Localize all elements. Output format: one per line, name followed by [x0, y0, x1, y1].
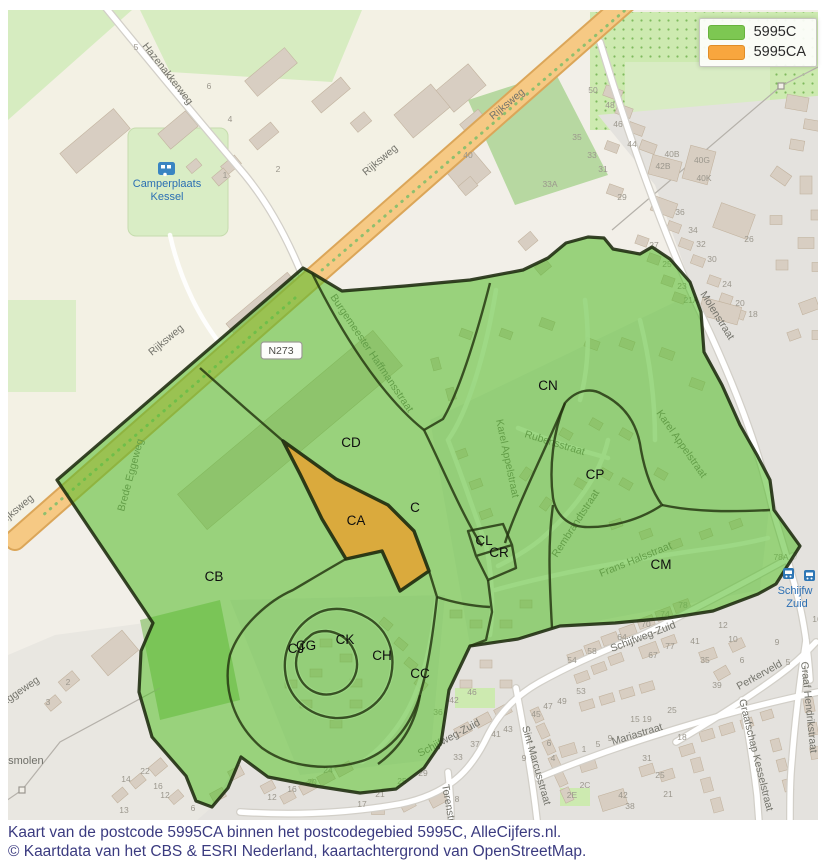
house-number: 53 — [576, 686, 586, 696]
house-number: 17 — [357, 799, 367, 809]
house-number: 67 — [648, 650, 658, 660]
house-number: 14 — [121, 774, 131, 784]
house-number: 4 — [551, 753, 556, 763]
bus-stop-icon — [804, 570, 815, 581]
building — [770, 216, 782, 225]
house-number: 5 — [596, 739, 601, 749]
house-number: 19 — [642, 714, 652, 724]
house-number: 34 — [688, 225, 698, 235]
house-number: 54 — [567, 655, 577, 665]
house-number: 26 — [744, 234, 754, 244]
house-number: 31 — [642, 753, 652, 763]
map-legend: 5995C 5995CA — [699, 18, 817, 67]
house-number: 1 — [223, 170, 228, 180]
area-label-cr: CR — [489, 545, 509, 560]
legend-label-5995c: 5995C — [754, 25, 797, 40]
house-number: 16 — [287, 784, 297, 794]
house-number: 10 — [728, 634, 738, 644]
legend-item-5995ca: 5995CA — [708, 45, 806, 60]
house-number: 40G — [694, 155, 710, 165]
house-number: 9 — [608, 733, 613, 743]
house-number: 13 — [119, 805, 129, 815]
house-number: 18 — [677, 732, 687, 742]
house-number: 41 — [491, 729, 501, 739]
area-label-c: C — [410, 500, 420, 515]
area-label-cb: CB — [205, 569, 224, 584]
house-number: 77 — [665, 641, 675, 651]
poi-label: Camperplaats — [133, 178, 202, 190]
house-number: 49 — [557, 696, 567, 706]
house-number: 3 — [46, 697, 51, 707]
area-label-cc: CC — [410, 666, 430, 681]
legend-swatch-5995c — [708, 25, 745, 40]
house-number: 50 — [588, 85, 598, 95]
house-number: 12 — [160, 790, 170, 800]
house-number: 5 — [786, 657, 791, 667]
house-number: 4 — [228, 114, 233, 124]
house-number: 64 — [617, 632, 627, 642]
house-number: 33 — [453, 752, 463, 762]
legend-label-5995ca: 5995CA — [754, 45, 806, 60]
house-number: 21 — [663, 789, 673, 799]
house-number: 9 — [775, 637, 780, 647]
house-number: 2C — [580, 780, 591, 790]
building — [812, 331, 818, 340]
house-number: 40 — [463, 150, 473, 160]
house-number: 58 — [587, 646, 597, 656]
transit-stop-label: Zuid — [786, 598, 807, 610]
caravan-icon — [158, 162, 175, 176]
house-number: 42 — [449, 695, 459, 705]
area-label-cg: CG — [296, 638, 316, 653]
house-number: 6 — [740, 655, 745, 665]
building — [811, 210, 818, 220]
house-number: 39 — [712, 680, 722, 690]
house-number: 35 — [700, 655, 710, 665]
building — [789, 139, 805, 151]
area-label-ck: CK — [336, 632, 355, 647]
house-number: 31 — [598, 164, 608, 174]
house-number: 38 — [625, 801, 635, 811]
house-number: 2 — [66, 677, 71, 687]
building — [798, 238, 814, 249]
house-number: 42 — [618, 790, 628, 800]
road-ref-badge-n273: N273 — [261, 342, 302, 359]
house-number: 45 — [531, 709, 541, 719]
house-number: 15 — [630, 714, 640, 724]
house-number: 32 — [696, 239, 706, 249]
poi-label: usmolen — [8, 755, 44, 767]
house-number: 41 — [690, 636, 700, 646]
house-number: 2E — [567, 790, 578, 800]
house-number: 42B — [655, 161, 670, 171]
house-number: 25 — [655, 770, 665, 780]
house-number: 37 — [470, 739, 480, 749]
caption-line-1: Kaart van de postcode 5995CA binnen het … — [8, 823, 822, 842]
house-number: 6 — [191, 803, 196, 813]
area-label-ch: CH — [372, 648, 392, 663]
house-number: 8 — [455, 794, 460, 804]
house-number: 1 — [582, 744, 587, 754]
house-number: 40K — [696, 173, 711, 183]
house-number: 43 — [503, 724, 513, 734]
house-number: 6 — [547, 738, 552, 748]
house-number: 9 — [522, 753, 527, 763]
area-label-cd: CD — [341, 435, 361, 450]
house-number: 6 — [207, 81, 212, 91]
house-number: 46 — [613, 119, 623, 129]
house-number: 47 — [543, 701, 553, 711]
building — [812, 263, 818, 272]
svg-text:N273: N273 — [268, 345, 293, 357]
house-number: 25 — [667, 705, 677, 715]
transit-stop-label: Schijfw — [778, 585, 813, 597]
legend-item-5995c: 5995C — [708, 25, 806, 40]
house-number: 5 — [134, 42, 139, 52]
house-number: 33 — [587, 150, 597, 160]
house-number: 12 — [718, 620, 728, 630]
house-number: 24 — [722, 279, 732, 289]
area-label-cm: CM — [651, 557, 672, 572]
building — [480, 660, 492, 668]
map-canvas[interactable]: HazenakkerwegRijkswegRijkswegRijkswegRij… — [8, 10, 818, 820]
house-number: 18 — [748, 309, 758, 319]
area-label-cp: CP — [586, 467, 605, 482]
house-number: 30 — [707, 254, 717, 264]
house-number: 20 — [735, 298, 745, 308]
poi-label: Kessel — [150, 191, 183, 203]
house-number: 22 — [140, 766, 150, 776]
house-number: 35 — [572, 132, 582, 142]
house-number: 33A — [542, 179, 557, 189]
house-number: 36 — [675, 207, 685, 217]
area-label-ca: CA — [347, 513, 366, 528]
building — [800, 176, 812, 194]
caption-line-2: © Kaartdata van het CBS & ESRI Nederland… — [8, 842, 822, 861]
map-svg: HazenakkerwegRijkswegRijkswegRijkswegRij… — [8, 10, 818, 820]
house-number: 46 — [467, 687, 477, 697]
house-number: 2 — [276, 164, 281, 174]
legend-swatch-5995ca — [708, 45, 745, 60]
house-number: 44 — [627, 139, 637, 149]
building — [776, 260, 788, 270]
area-label-cn: CN — [538, 378, 558, 393]
bus-stop-icon — [783, 568, 794, 579]
building — [500, 680, 512, 688]
house-number: 16 — [812, 614, 818, 624]
house-number: 12 — [267, 792, 277, 802]
house-number: 29 — [617, 192, 627, 202]
house-number: 40B — [664, 149, 679, 159]
house-number: 48 — [605, 100, 615, 110]
map-caption: Kaart van de postcode 5995CA binnen het … — [8, 823, 822, 861]
